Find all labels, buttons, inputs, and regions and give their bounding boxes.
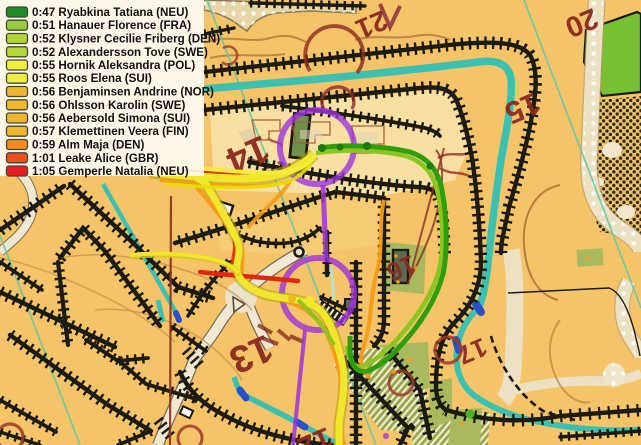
svg-text:0:51 Hanauer Florence (FRA): 0:51 Hanauer Florence (FRA)	[32, 19, 191, 32]
svg-text:0:56 Ohlsson Karolin (SWE): 0:56 Ohlsson Karolin (SWE)	[32, 99, 185, 112]
svg-text:0:59 Alm Maja (DEN): 0:59 Alm Maja (DEN)	[32, 139, 144, 152]
svg-text:0:56 Aebersold Simona (SUI): 0:56 Aebersold Simona (SUI)	[32, 112, 190, 125]
svg-text:1:05 Gemperle Natalia (NEU): 1:05 Gemperle Natalia (NEU)	[32, 165, 189, 178]
svg-text:1:01 Leake Alice (GBR): 1:01 Leake Alice (GBR)	[32, 152, 159, 165]
svg-text:0:52 Alexandersson Tove (SWE): 0:52 Alexandersson Tove (SWE)	[32, 46, 208, 59]
svg-text:0:47 Ryabkina Tatiana (NEU): 0:47 Ryabkina Tatiana (NEU)	[32, 6, 188, 19]
svg-text:0:52 Klysner Cecilie Friberg (: 0:52 Klysner Cecilie Friberg (DEN)	[32, 33, 220, 46]
svg-text:0:55 Hornik Aleksandra (POL): 0:55 Hornik Aleksandra (POL)	[32, 59, 195, 72]
svg-text:0:55 Roos Elena (SUI): 0:55 Roos Elena (SUI)	[32, 72, 152, 85]
svg-text:0:57 Klemettinen Veera (FIN): 0:57 Klemettinen Veera (FIN)	[32, 125, 189, 138]
svg-text:0:56 Benjaminsen Andrine (NOR): 0:56 Benjaminsen Andrine (NOR)	[32, 86, 214, 99]
